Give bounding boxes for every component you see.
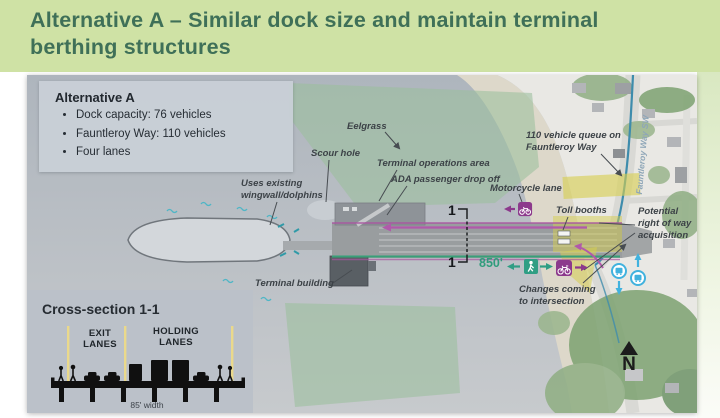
label-terminal-operations: Terminal operations area <box>377 158 490 170</box>
bus-icon <box>631 271 645 285</box>
label-motorcycle-lane: Motorcycle lane <box>490 183 562 195</box>
bus-icon <box>612 264 626 278</box>
north-label: N <box>618 355 640 376</box>
truck-silhouette <box>172 360 189 381</box>
cross-section-drawing <box>27 290 253 413</box>
label-850ft: 850' <box>479 256 503 270</box>
section-marker-1-top: 1 <box>448 202 456 218</box>
legend-title: Alternative A <box>55 90 293 105</box>
site-plan-map: Alternative A Dock capacity: 76 vehicles… <box>27 75 697 413</box>
motorcycle-icon <box>518 202 532 216</box>
legend-item: Dock capacity: 76 vehicles <box>76 108 293 124</box>
label-terminal-building: Terminal building <box>255 278 334 290</box>
legend-box: Alternative A Dock capacity: 76 vehicles… <box>39 81 293 172</box>
truck-silhouette <box>129 364 142 381</box>
legend-item: Four lanes <box>76 145 293 161</box>
label-right-of-way: Potential right of way acquisition <box>638 206 691 242</box>
label-intersection-changes: Changes coming to intersection <box>519 284 596 308</box>
pedestrian-icon <box>524 259 538 274</box>
label-eelgrass: Eelgrass <box>347 121 387 133</box>
pedestrian-silhouette <box>71 365 76 381</box>
truck-silhouette <box>151 360 168 381</box>
section-marker-1-bottom: 1 <box>448 254 456 270</box>
label-wingwall: Uses existing wingwall/dolphins <box>241 178 323 202</box>
width-dimension-label: 85' width <box>97 400 197 410</box>
bicycle-icon <box>556 260 572 276</box>
ferry-vessel <box>128 218 290 262</box>
north-arrow: N <box>618 341 640 376</box>
legend-item: Fauntleroy Way: 110 vehicles <box>76 127 293 143</box>
car-silhouette <box>193 372 209 381</box>
car-silhouette <box>104 372 120 381</box>
car-silhouette <box>84 372 100 381</box>
label-vehicle-queue: 110 vehicle queue on Fauntleroy Way <box>526 130 621 154</box>
background-strip <box>697 72 720 418</box>
pier-deck <box>51 378 245 403</box>
slide-header: Alternative A – Similar dock size and ma… <box>0 0 720 72</box>
slide-title: Alternative A – Similar dock size and ma… <box>30 7 680 61</box>
cross-section-vehicles <box>59 360 232 381</box>
label-toll-booths: Toll booths <box>556 205 607 217</box>
cross-section-panel: Cross-section 1-1 EXIT LANES HOLDING LAN… <box>27 290 253 413</box>
label-ada-drop-off: ADA passenger drop off <box>391 174 500 186</box>
north-arrow-icon <box>620 341 638 355</box>
label-scour-hole: Scour hole <box>311 148 360 160</box>
pedestrian-silhouette <box>59 366 63 381</box>
pedestrian-silhouette <box>218 365 223 381</box>
legend-list: Dock capacity: 76 vehicles Fauntleroy Wa… <box>55 108 293 161</box>
